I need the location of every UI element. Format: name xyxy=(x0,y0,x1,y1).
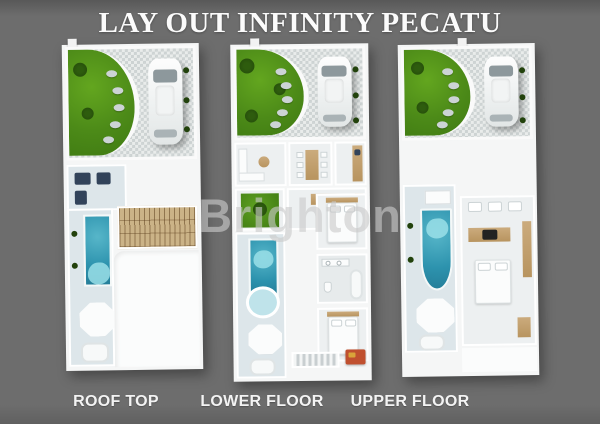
stepping-stone xyxy=(277,109,288,116)
stepping-stone xyxy=(282,96,293,103)
stepping-stone xyxy=(107,70,118,77)
coffee-table xyxy=(258,156,269,167)
dining-chair xyxy=(320,162,327,168)
shrub-icon xyxy=(353,66,359,72)
stepping-stone xyxy=(112,87,123,94)
floor-plan-lower-floor xyxy=(230,43,372,381)
outdoor-tub xyxy=(81,342,109,362)
daybed-octagon xyxy=(79,302,115,336)
cushion xyxy=(348,352,355,357)
stepping-stone xyxy=(442,68,453,75)
cushion xyxy=(468,202,482,212)
stepping-stone xyxy=(443,110,454,117)
sink xyxy=(337,261,342,266)
shrub-icon xyxy=(353,117,359,123)
floor-plan-roof-top xyxy=(62,43,204,371)
bar-counter xyxy=(75,173,91,185)
pool-deck xyxy=(403,184,458,353)
bathroom xyxy=(316,253,368,304)
shrub-icon xyxy=(184,97,190,103)
carport-paving xyxy=(233,45,366,140)
car-roof xyxy=(492,79,511,103)
bench-orange xyxy=(345,349,365,364)
stepping-stone xyxy=(448,82,459,89)
stepping-stone xyxy=(110,121,121,128)
pool-deck xyxy=(235,232,287,379)
shrub-icon xyxy=(353,92,359,98)
car xyxy=(484,56,519,127)
pillow xyxy=(330,206,341,213)
stairs-wood xyxy=(518,317,531,337)
shrub-icon xyxy=(183,68,189,74)
pillow xyxy=(331,320,342,327)
cushion xyxy=(488,202,502,212)
pillow xyxy=(478,263,491,271)
stepping-stone xyxy=(448,96,459,103)
floor-label-lower-floor: LOWER FLOOR xyxy=(192,393,332,411)
bathtub xyxy=(350,269,363,299)
deck-bench xyxy=(425,190,451,204)
sofa xyxy=(239,172,265,181)
tv-icon xyxy=(482,230,497,240)
daybed-octagon xyxy=(248,324,282,354)
plant-icon xyxy=(253,202,267,216)
shrub-icon xyxy=(520,117,526,123)
pergola-roof xyxy=(117,205,198,249)
bar-stool xyxy=(75,191,87,205)
landing xyxy=(462,347,537,372)
plant-icon xyxy=(416,101,428,113)
courtyard xyxy=(235,188,285,231)
shrub-icon xyxy=(71,231,77,237)
car-roof xyxy=(156,86,175,116)
dining-chair xyxy=(320,152,327,158)
toilet xyxy=(324,282,332,293)
sink xyxy=(326,261,331,266)
bar-area xyxy=(66,164,127,211)
stepping-stone xyxy=(270,122,281,129)
kitchen xyxy=(334,141,366,185)
shrub-icon xyxy=(519,68,525,74)
living-room xyxy=(234,142,286,187)
roof-deck xyxy=(114,250,201,367)
plant-icon xyxy=(411,62,424,75)
dining-chair xyxy=(296,152,303,158)
pool-highlight xyxy=(88,262,110,284)
stepping-stone xyxy=(437,122,448,129)
stepping-stone xyxy=(103,136,114,143)
bed xyxy=(327,202,357,242)
bar-counter xyxy=(97,172,111,184)
stepping-stone xyxy=(281,82,292,89)
floor-label-upper-floor: UPPER FLOOR xyxy=(340,393,480,411)
shrub-icon xyxy=(407,223,413,229)
dining-chair xyxy=(321,172,328,178)
bedroom-1 xyxy=(316,193,368,250)
floor-plan-upper-floor xyxy=(398,43,540,377)
car xyxy=(317,56,352,127)
stairs xyxy=(291,352,339,369)
pillow xyxy=(344,205,355,212)
outdoor-tub xyxy=(419,334,445,350)
master-bedroom xyxy=(460,195,537,346)
pool-highlight xyxy=(253,250,273,268)
wardrobe xyxy=(522,221,532,277)
stepping-stone xyxy=(275,68,286,75)
pool-highlight xyxy=(426,218,448,238)
carport-paving xyxy=(65,45,198,161)
plant-icon xyxy=(82,108,94,120)
pillow xyxy=(495,262,508,270)
floor-label-roof-top: ROOF TOP xyxy=(46,393,186,411)
page-title: LAY OUT INFINITY PECATU xyxy=(0,7,600,40)
pool-deck xyxy=(67,208,115,367)
round-spa xyxy=(246,286,280,318)
palm-icon xyxy=(239,58,254,73)
palm-icon xyxy=(245,110,258,123)
daybed-octagon xyxy=(416,298,454,333)
shrub-icon xyxy=(520,94,526,100)
garden xyxy=(236,49,309,136)
garden xyxy=(404,49,476,136)
shrub-icon xyxy=(408,257,414,263)
shrub-icon xyxy=(72,263,78,269)
car-roof xyxy=(325,79,344,103)
dining-table xyxy=(305,150,318,180)
plant-icon xyxy=(73,62,87,76)
cushion xyxy=(508,201,522,211)
stove xyxy=(354,149,360,155)
pool xyxy=(420,208,453,290)
stepping-stone xyxy=(114,104,125,111)
outdoor-tub xyxy=(250,358,276,375)
pool xyxy=(83,214,112,286)
dining-room xyxy=(288,142,332,186)
carport-paving xyxy=(401,45,533,141)
car xyxy=(148,58,183,145)
bed xyxy=(475,259,512,303)
pillow xyxy=(345,319,356,326)
dining-chair xyxy=(296,162,303,168)
dining-chair xyxy=(297,172,304,178)
garden xyxy=(68,49,141,156)
shrub-icon xyxy=(184,126,190,132)
